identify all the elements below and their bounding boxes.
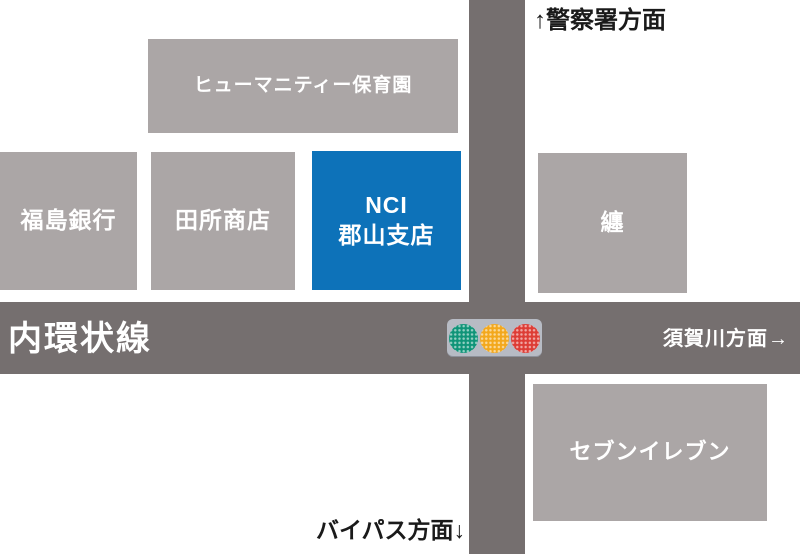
building-nci-koriyama-branch: NCI 郡山支店 — [312, 151, 461, 290]
building-fukushima-bank: 福島銀行 — [0, 152, 137, 290]
building-nci-label-line1: NCI — [365, 191, 408, 221]
building-nursery: ヒューマニティー保育園 — [148, 39, 458, 133]
building-nursery-label: ヒューマニティー保育園 — [194, 74, 413, 99]
direction-north-label: ↑警察署方面 — [534, 9, 666, 33]
road-vertical — [469, 0, 525, 554]
building-seven-eleven-label: セブンイレブン — [569, 438, 730, 467]
building-nci-label-line2: 郡山支店 — [339, 221, 435, 251]
traffic-light — [447, 319, 542, 357]
building-tadokoro-shop: 田所商店 — [151, 152, 295, 290]
building-matoi-label: 纏 — [601, 208, 625, 238]
building-seven-eleven: セブンイレブン — [533, 384, 767, 521]
road-name-label: 内環状線 — [8, 322, 152, 356]
building-tadokoro-shop-label: 田所商店 — [175, 206, 271, 236]
traffic-light-yellow-icon — [480, 324, 509, 353]
traffic-light-red-icon — [511, 324, 540, 353]
direction-south-label: バイパス方面↓ — [316, 519, 465, 542]
access-map: ヒューマニティー保育園 福島銀行 田所商店 NCI 郡山支店 纏 セブンイレブン… — [0, 0, 800, 554]
building-fukushima-bank-label: 福島銀行 — [21, 206, 117, 236]
building-matoi: 纏 — [538, 153, 687, 293]
direction-east-label: 須賀川方面→ — [663, 329, 789, 349]
traffic-light-green-icon — [449, 324, 478, 353]
